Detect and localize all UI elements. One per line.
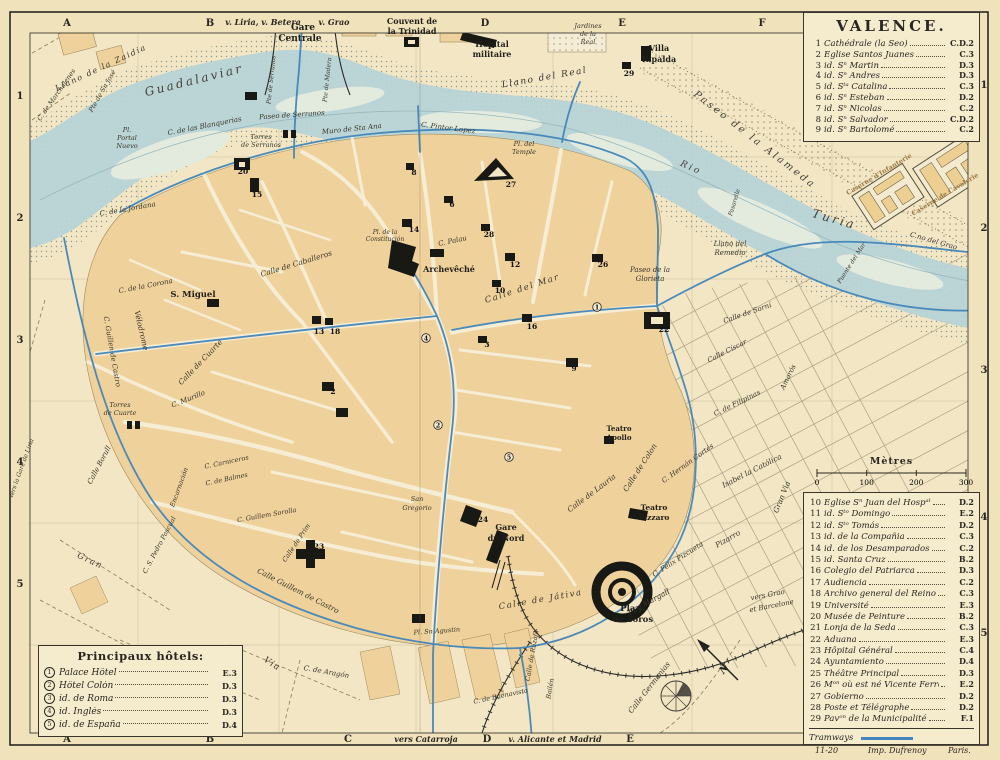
legend-row-name: Poste et Télégraphe (824, 703, 909, 713)
legend-row-name: id. de la Compañia (824, 532, 905, 542)
svg-text:3: 3 (484, 340, 489, 349)
legend-row-gridref: D.2 (947, 497, 974, 507)
landmark-number: 23 (314, 542, 324, 551)
legend-row-number: 14 (809, 544, 821, 554)
map-label: Torres (250, 133, 272, 141)
landmark-number: 28 (484, 230, 494, 239)
dotted-leader (886, 663, 945, 664)
imprint-city: Paris. (948, 746, 971, 755)
legend-row-name: Eglise Santos Juanes (824, 50, 914, 60)
legend-row-number: 24 (809, 657, 821, 667)
grid-letter: E (618, 18, 626, 29)
svg-text:4: 4 (424, 335, 429, 342)
legend-row-number: 20 (809, 612, 821, 622)
legend-row-number: 21 (809, 623, 821, 633)
dotted-leader (115, 684, 208, 685)
map-label: San (411, 495, 424, 503)
svg-text:10: 10 (495, 286, 505, 295)
svg-text:14: 14 (409, 225, 419, 234)
hotel-row-number: 2 (44, 680, 55, 691)
legend-row-number: 28 (809, 703, 821, 713)
map-label: Teatro (607, 424, 632, 433)
legend-row-number: 10 (809, 498, 821, 508)
legend-row-gridref: D.2 (947, 702, 974, 712)
legend-row: 22 Aduana E.3 (809, 634, 974, 645)
landmark-number: 2 (330, 387, 335, 396)
legend-row-number: 7 (809, 104, 821, 114)
hotel-row-name: Hôtel Colón (59, 681, 113, 691)
grid-number: 3 (17, 335, 24, 346)
legend-row-gridref: D.3 (947, 70, 974, 80)
hotel-marker: 4 (422, 334, 431, 343)
dotted-leader (910, 45, 945, 46)
legend-row: 16 Colegio del Patriarca D.3 (809, 565, 974, 576)
legend-row-name: id. Sⁿ Salvador (824, 115, 888, 125)
tramway-line-sample (861, 737, 913, 740)
svg-text:23: 23 (314, 542, 324, 551)
dotted-leader (889, 88, 945, 89)
svg-text:200: 200 (909, 478, 924, 487)
grid-letter: E (626, 734, 634, 745)
map-label: Centrale (278, 34, 322, 44)
svg-text:24: 24 (478, 515, 488, 524)
legend-row: 17 Audiencia C.2 (809, 577, 974, 588)
legend-row-number: 5 (809, 82, 821, 92)
legend-row-number: 22 (809, 635, 821, 645)
landmark-number: 13 (314, 327, 324, 336)
svg-text:26: 26 (598, 260, 608, 269)
landmark-number: 24 (478, 515, 488, 524)
legend-row-name: Archivo general del Reino (824, 589, 936, 599)
map-label: Teatro (641, 503, 668, 512)
svg-text:27: 27 (506, 180, 516, 189)
map-label: Gare (495, 522, 516, 532)
legend-row-gridref: C.3 (947, 622, 974, 632)
legend-row: 7 id. Sⁿ Nicolas C.2 (809, 103, 974, 114)
landmark-number: 12 (510, 260, 520, 269)
legend-row-gridref: D.2 (947, 691, 974, 701)
legend-row-gridref: D.2 (947, 92, 974, 102)
legend-row-number: 29 (809, 714, 821, 724)
legend-row-number: 27 (809, 692, 821, 702)
legend-row-number: 26 (809, 680, 821, 690)
legend-row-number: 16 (809, 566, 821, 576)
legend-row-number: 11 (809, 509, 821, 519)
dotted-leader (907, 538, 945, 539)
plate-number: 11-20 (815, 746, 838, 755)
grid-number: 5 (17, 579, 24, 590)
dotted-leader (859, 641, 945, 642)
legend-row: 27 Gobierno D.2 (809, 691, 974, 702)
landmark-number: 15 (252, 190, 262, 199)
map-title: VALENCE. (809, 17, 974, 35)
hotel-row-number: 3 (44, 693, 55, 704)
legend-row-gridref: C.2 (947, 124, 974, 134)
grid-number: 2 (981, 223, 988, 234)
hotel-row-gridref: D.3 (210, 694, 237, 704)
svg-text:12: 12 (510, 260, 520, 269)
map-label: Pl. de la (372, 229, 398, 236)
credits: 11-20 Imp. Dufrenoy Paris. (0, 746, 1000, 760)
legend-row-name: id. de los Desamparados (824, 544, 930, 554)
legend-row-gridref: D.3 (947, 60, 974, 70)
roundhouse (661, 681, 691, 711)
legend-row-gridref: C.3 (947, 49, 974, 59)
legend-row-number: 1 (809, 39, 821, 49)
svg-text:16: 16 (527, 322, 537, 331)
hotel-marker: 1 (593, 303, 602, 312)
dotted-leader (866, 698, 945, 699)
svg-text:13: 13 (314, 327, 324, 336)
legend-row-name: id. Sⁿ Esteban (824, 93, 885, 103)
legend-row-number: 15 (809, 555, 821, 565)
map-label: la Trinidad (388, 26, 437, 36)
legend-row-name: id. Sⁿ Nicolas (824, 104, 882, 114)
legend-row-name: Mᵒⁿ où est né Vicente Ferrer (824, 680, 939, 690)
route-label: v. Grao (319, 17, 351, 27)
legend-row-number: 9 (809, 125, 821, 135)
map-label: Paseo de la (629, 266, 670, 274)
map-label: Constitución (366, 236, 405, 243)
dotted-leader (871, 607, 945, 608)
hotel-row-number: 4 (44, 706, 55, 717)
legend-row: 4 id. Sⁿ Andres D.3 (809, 70, 974, 81)
legend-row: 21 Lonja de la Seda C.3 (809, 622, 974, 633)
legend-row-gridref: E.2 (947, 508, 974, 518)
map-label: Couvent de (387, 16, 437, 26)
legend-row-name: Lonja de la Seda (824, 623, 896, 633)
grid-number: 5 (981, 628, 988, 639)
hotel-row-number: 1 (44, 667, 55, 678)
hotel-row: 5 id. de España D.4 (44, 718, 237, 731)
landmark-number: 6 (449, 200, 454, 209)
grid-number: 4 (981, 512, 988, 523)
landmark-number: 8 (411, 168, 416, 177)
map-label: Glorieta (636, 275, 665, 283)
legend-row-gridref: C.2 (947, 543, 974, 553)
map-label: Apollo (606, 433, 632, 442)
legend-row-name: Cathédrale (la Seo) (824, 39, 908, 49)
legend-row-gridref: E.3 (947, 600, 974, 610)
route-label: vers Catarroja (394, 734, 458, 744)
legend-row-number: 23 (809, 646, 821, 656)
hotel-row-name: id. Inglés (59, 707, 101, 717)
legend-row-gridref: D.4 (947, 656, 974, 666)
dotted-leader (941, 686, 945, 687)
map-label: Pl. del (513, 140, 535, 148)
hotels-rows: 1 Palace Hôtel E.3 2 Hôtel Colón D.3 3 i… (44, 666, 237, 731)
map-label: militaire (473, 49, 512, 59)
map-label: de Toros (613, 615, 653, 625)
legend-row-number: 25 (809, 669, 821, 679)
grid-letter: B (206, 18, 214, 29)
legend-row-gridref: C.4 (947, 645, 974, 655)
dotted-leader (884, 110, 945, 111)
legend-row: 18 Archivo general del Reino C.3 (809, 588, 974, 599)
map-label: du Nord (488, 533, 525, 543)
legend-row-gridref: D.2 (947, 520, 974, 530)
legend-row-number: 4 (809, 71, 821, 81)
svg-text:300: 300 (959, 478, 974, 487)
legend-row-gridref: C.3 (947, 81, 974, 91)
dotted-leader (881, 67, 945, 68)
svg-text:2: 2 (436, 422, 440, 429)
legend-row: 15 id. Santa Cruz B.2 (809, 554, 974, 565)
map-label: Llano del (713, 240, 747, 248)
legend-row-name: Colegio del Patriarca (824, 566, 915, 576)
landmark-number: 10 (495, 286, 505, 295)
legend-row-number: 12 (809, 521, 821, 531)
hotel-row: 1 Palace Hôtel E.3 (44, 666, 237, 679)
hotel-row: 2 Hôtel Colón D.3 (44, 679, 237, 692)
legend-churches-rows: 1 Cathédrale (la Seo) C.D.2 2 Eglise San… (809, 38, 974, 135)
tramways-legend-row: Tramways (809, 728, 974, 745)
dotted-leader (916, 56, 945, 57)
legend-row: 20 Musée de Peinture B.2 (809, 611, 974, 622)
legend-main-rows: 10 Eglise Sⁿ Juan del Hospᵃˡ D.2 11 id. … (809, 497, 974, 725)
svg-text:22: 22 (659, 325, 669, 334)
dotted-leader (938, 595, 945, 596)
map-label: Remedio (713, 249, 745, 257)
legend-row: 11 id. Sᵗᵒ Domingo E.2 (809, 508, 974, 519)
legend-row: 19 Université E.3 (809, 600, 974, 611)
legend-row-name: Hôpital Général (824, 646, 893, 656)
legend-row-number: 3 (809, 61, 821, 71)
map-page: N ABDEFABCDE1234512345v. Liria, v. Beter… (0, 0, 1000, 760)
landmark-number: 16 (527, 322, 537, 331)
dotted-leader (890, 121, 945, 122)
svg-text:9: 9 (571, 364, 576, 373)
dotted-leader (887, 99, 945, 100)
hotel-row-name: id. de Roma (59, 694, 113, 704)
dotted-leader (892, 515, 945, 516)
hotel-row-name: Palace Hôtel (59, 668, 117, 678)
dotted-leader (898, 629, 945, 630)
hotel-row: 4 id. Inglés D.3 (44, 705, 237, 718)
grid-number: 1 (981, 80, 988, 91)
legend-row-gridref: F.1 (947, 713, 974, 723)
grid-letter: D (483, 734, 492, 745)
legend-row: 8 id. Sⁿ Salvador C.D.2 (809, 114, 974, 125)
legend-row: 2 Eglise Santos Juanes C.3 (809, 49, 974, 60)
dotted-leader (911, 709, 945, 710)
map-label: Jardines (572, 22, 602, 30)
hotel-row-gridref: E.3 (210, 668, 237, 678)
svg-text:2: 2 (330, 387, 335, 396)
scale-bar: Mètres 0 100 200 300 (803, 456, 980, 491)
dotted-leader (869, 584, 945, 585)
legend-row-name: Musée de Peinture (824, 612, 905, 622)
legend-row: 1 Cathédrale (la Seo) C.D.2 (809, 38, 974, 49)
map-label: Torres (109, 401, 131, 409)
legend-row-name: id. Sᵗᵒ Tomás (824, 521, 879, 531)
grid-letter: A (62, 18, 71, 29)
legend-row-name: id. Sᵗᵃ Catalina (824, 82, 887, 92)
legend-row: 3 id. Sⁿ Martin D.3 (809, 60, 974, 71)
grid-letter: C (344, 734, 352, 745)
legend-row: 23 Hôpital Général C.4 (809, 645, 974, 656)
dotted-leader (103, 710, 208, 711)
grid-number: 3 (981, 365, 988, 376)
hotel-row: 3 id. de Roma D.3 (44, 692, 237, 705)
hotel-row-gridref: D.4 (210, 720, 237, 730)
legend-row: 25 Théâtre Principal D.3 (809, 668, 974, 679)
legend-row-gridref: C.D.2 (947, 114, 974, 124)
landmark-number: 9 (571, 364, 576, 373)
landmark-number: 22 (659, 325, 669, 334)
landmark-number: 20 (238, 167, 248, 176)
legend-row: 5 id. Sᵗᵃ Catalina C.3 (809, 81, 974, 92)
legend-row-name: id. Sⁿ Martin (824, 61, 879, 71)
svg-text:1: 1 (595, 304, 599, 311)
hotels-title: Principaux hôtels: (44, 649, 237, 663)
legend-row-name: Eglise Sⁿ Juan del Hospᵃˡ (824, 498, 931, 508)
legend-row-number: 8 (809, 115, 821, 125)
map-label: Nuevo (115, 142, 137, 150)
legend-row-gridref: C.2 (947, 103, 974, 113)
map-label: Gregorio (402, 504, 431, 512)
legend-row: 12 id. Sᵗᵒ Tomás D.2 (809, 520, 974, 531)
legend-row-gridref: E.3 (947, 634, 974, 644)
legend-row-gridref: D.3 (947, 668, 974, 678)
dotted-leader (123, 723, 208, 724)
landmark-number: 14 (409, 225, 419, 234)
legend-hotels-box: Principaux hôtels: 1 Palace Hôtel E.3 2 … (38, 645, 243, 737)
route-label: v. Alicante et Madrid (508, 734, 602, 744)
legend-row-number: 18 (809, 589, 821, 599)
tramways-label: Tramways (809, 733, 853, 743)
hotel-marker: 5 (505, 453, 514, 462)
grid-number: 2 (17, 213, 24, 224)
map-label: Temple (512, 148, 536, 156)
dotted-leader (932, 550, 945, 551)
legend-row-name: Aduana (824, 635, 857, 645)
dotted-leader (882, 77, 945, 78)
svg-text:15: 15 (252, 190, 262, 199)
legend-main-box: 10 Eglise Sⁿ Juan del Hospᵃˡ D.2 11 id. … (803, 492, 980, 745)
legend-row-gridref: D.3 (947, 565, 974, 575)
legend-row-gridref: E.2 (947, 679, 974, 689)
legend-row-name: id. Sⁿ Andres (824, 71, 880, 81)
svg-text:6: 6 (449, 200, 454, 209)
svg-text:18: 18 (330, 327, 340, 336)
map-label: Archevêché (422, 264, 475, 274)
legend-row-name: Théâtre Principal (824, 669, 899, 679)
legend-row-name: id. Sᵗᵒ Domingo (824, 509, 890, 519)
hotel-row-number: 5 (44, 719, 55, 730)
legend-row-name: Audiencia (824, 578, 867, 588)
dotted-leader (933, 504, 945, 505)
map-label: de Cuarte (104, 409, 137, 417)
legend-row-number: 6 (809, 93, 821, 103)
legend-row-number: 19 (809, 601, 821, 611)
svg-text:20: 20 (238, 167, 248, 176)
legend-row-name: id. Santa Cruz (824, 555, 886, 565)
map-label: S. Miguel (170, 290, 216, 300)
legend-row-gridref: C.D.2 (947, 38, 974, 48)
legend-row-name: Ayuntamiento (824, 657, 884, 667)
hotel-marker: 2 (434, 421, 443, 430)
legend-row-number: 17 (809, 578, 821, 588)
legend-row: 6 id. Sⁿ Esteban D.2 (809, 92, 974, 103)
legend-row-gridref: C.3 (947, 531, 974, 541)
legend-row: 24 Ayuntamiento D.4 (809, 656, 974, 667)
route-label: v. Liria, v. Betera (225, 17, 301, 27)
dotted-leader (119, 671, 208, 672)
grid-letter: D (481, 18, 490, 29)
legend-row-number: 13 (809, 532, 821, 542)
map-label: Gare (291, 23, 315, 33)
legend-row: 13 id. de la Compañia C.3 (809, 531, 974, 542)
dotted-leader (929, 720, 945, 721)
hotel-row-name: id. de España (59, 720, 121, 730)
landmark-number: 3 (484, 340, 489, 349)
legend-row-name: id. Sⁿ Bartolomé (824, 125, 894, 135)
map-label: Plaza (620, 604, 646, 614)
scale-ruler: 0 100 200 300 (803, 467, 980, 487)
landmark-number: 18 (330, 327, 340, 336)
legend-row: 9 id. Sⁿ Bartolomé C.2 (809, 124, 974, 135)
legend-row: 14 id. de los Desamparados C.2 (809, 543, 974, 554)
dotted-leader (115, 697, 208, 698)
legend-row: 29 Pavᵒⁿ de la Municipalité F.1 (809, 713, 974, 724)
dotted-leader (917, 572, 945, 573)
legend-row-gridref: B.2 (947, 611, 974, 621)
legend-row-gridref: B.2 (947, 554, 974, 564)
landmark-number: 27 (506, 180, 516, 189)
map-label: Portal (116, 134, 137, 142)
svg-text:28: 28 (484, 230, 494, 239)
svg-text:0: 0 (815, 478, 820, 487)
legend-row: 26 Mᵒⁿ où est né Vicente Ferrer E.2 (809, 679, 974, 690)
map-label: Pl. (122, 126, 132, 134)
legend-row-gridref: C.2 (947, 577, 974, 587)
legend-row-number: 2 (809, 50, 821, 60)
map-label: Pizzaro (639, 513, 670, 522)
hotel-row-gridref: D.3 (210, 707, 237, 717)
map-label: Ripalda (642, 54, 676, 64)
legend-row: 10 Eglise Sⁿ Juan del Hospᵃˡ D.2 (809, 497, 974, 508)
legend-row-name: Gobierno (824, 692, 864, 702)
svg-text:100: 100 (860, 478, 875, 487)
scale-title: Mètres (803, 456, 980, 467)
map-label: Hôpital (475, 39, 508, 49)
dotted-leader (881, 527, 945, 528)
landmark-number: 29 (624, 69, 634, 78)
grid-number: 1 (17, 91, 24, 102)
dotted-leader (907, 618, 945, 619)
map-label: de Serranos (241, 141, 282, 149)
svg-text:29: 29 (624, 69, 634, 78)
landmark-number: 26 (598, 260, 608, 269)
dotted-leader (901, 675, 945, 676)
map-label: de la (580, 30, 596, 38)
hotel-row-gridref: D.3 (210, 681, 237, 691)
grid-letter: F (758, 18, 765, 29)
svg-text:8: 8 (411, 168, 416, 177)
imprint: Imp. Dufrenoy (868, 746, 927, 755)
legend-row-name: Université (824, 601, 869, 611)
map-label: Villa (648, 43, 669, 53)
legend-row: 28 Poste et Télégraphe D.2 (809, 702, 974, 713)
legend-churches-box: VALENCE. 1 Cathédrale (la Seo) C.D.2 2 E… (803, 12, 980, 142)
legend-row-gridref: C.3 (947, 588, 974, 598)
dotted-leader (895, 652, 945, 653)
svg-text:5: 5 (507, 454, 511, 461)
dotted-leader (896, 131, 945, 132)
map-label: Real (580, 38, 596, 46)
legend-row-name: Pavᵒⁿ de la Municipalité (824, 714, 927, 724)
